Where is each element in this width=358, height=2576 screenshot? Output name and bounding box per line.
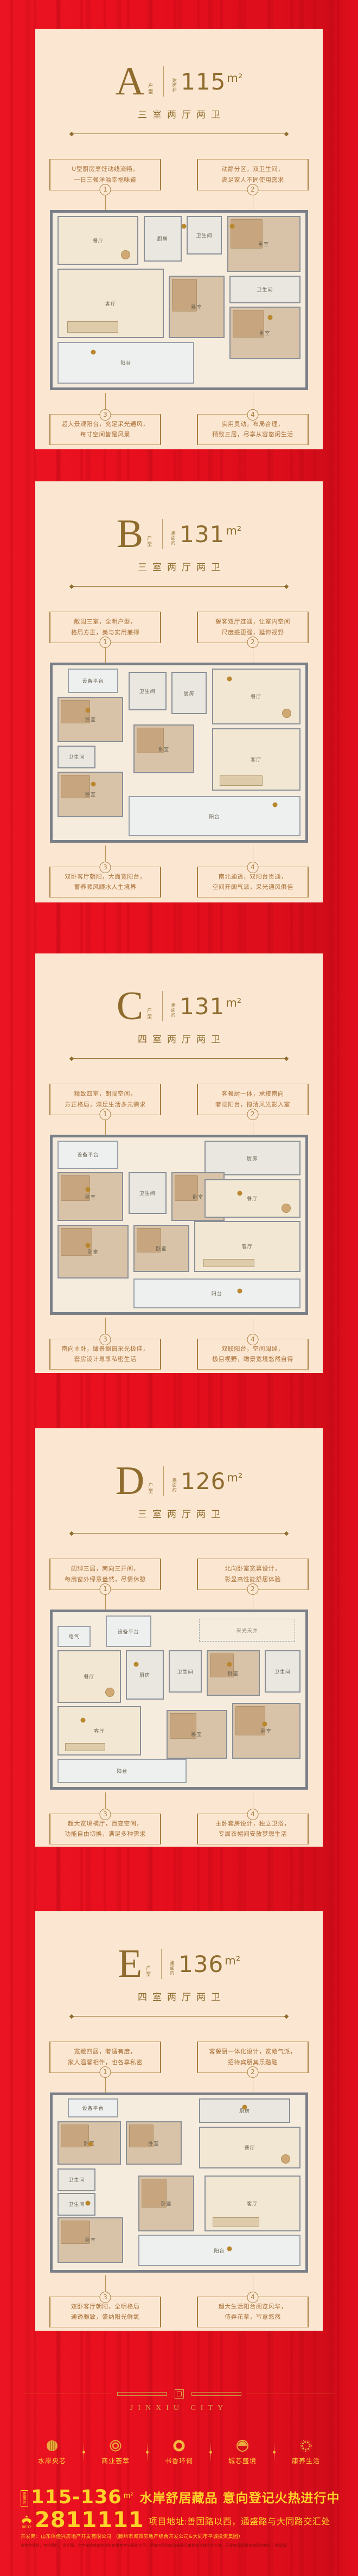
unit-card-c: C 户型 建面约 131 m² 四室两厅两卫 精致四室，朗阔空间， 方正格局，满… (35, 953, 323, 1373)
callout-box: U型厨房烹饪动线流畅， 一日三餐洋溢幸福味道 1 (49, 159, 161, 190)
furniture-sofa (213, 2217, 259, 2227)
layout-label: 四室两厅两卫 (35, 1989, 323, 2003)
layout-label: 三室两厅两卫 (35, 107, 323, 120)
divider-line (247, 2394, 336, 2394)
book-ring-icon (172, 2439, 186, 2453)
unit-letter: D (116, 1462, 144, 1500)
feature-separator (84, 2443, 84, 2462)
divider-line (23, 2394, 112, 2394)
unit-card-a: A 户型 建面约 115 m² 三室两厅两卫 U型厨房烹饪动线流畅， 一日三餐洋… (35, 29, 323, 449)
callout-box: 南向主卧，瞰景飘窗采光极佳， 套房设计尊享私密生活 3 (49, 1339, 161, 1370)
headline: 水岸舒居藏品 意向登记火热进行中 (140, 2491, 340, 2507)
unit-letter-suffix: 户型 (145, 536, 152, 548)
plan-marker (86, 1243, 91, 1248)
floor-plan: 电气设备平台采光天井餐厅厨房卫生间卧室卫生间客厅卧室卧室阳台 (50, 1610, 308, 1790)
room-label: 设备平台 (118, 1628, 139, 1635)
room: 厨房 (126, 1650, 164, 1699)
room: 卫生间 (57, 2168, 95, 2191)
room-label: 卧室 (85, 2236, 96, 2243)
layout-label: 三室两厅两卫 (35, 559, 323, 573)
feature-item: 商业荟萃 (91, 2439, 140, 2465)
divider-rect (117, 2392, 167, 2396)
callout-number: 3 (100, 409, 111, 421)
area-range: 115-136 (31, 2489, 122, 2507)
room: 卧室 (207, 1650, 260, 1696)
room: 厨房 (144, 216, 182, 262)
plan-marker (86, 1187, 91, 1192)
plan-marker (91, 781, 95, 786)
room: 卫生间 (169, 1650, 202, 1692)
callout-number: 1 (100, 637, 111, 648)
feature-label: 书香环伺 (165, 2456, 193, 2465)
area-prefix: 建面约 (170, 1003, 176, 1017)
section-divider (72, 2016, 286, 2017)
callout-box: 餐客双厅连通，让室内空间 尺度感更强，延伸视野 2 (197, 612, 309, 643)
furniture-sofa (65, 1743, 105, 1751)
unit-letter: C (117, 987, 143, 1025)
plan-marker (267, 315, 272, 320)
floor-plan: 设备平台厨房卧室卫生间卧室餐厅卧室卧室客厅阳台 (50, 1135, 308, 1315)
developer-line: 开发商：山东佰佳兴房地产开发有限公司 （滕州市城郊房地产综合开发公司&大同市平城… (21, 2533, 287, 2540)
unit-letter-suffix: 户型 (146, 83, 154, 95)
area-unit: m² (226, 996, 241, 1009)
plan-marker (80, 1718, 85, 1723)
room: 厨房 (199, 2098, 290, 2123)
plan-marker (227, 1662, 232, 1667)
area-value: 136 (178, 1951, 223, 1977)
room: 卧室 (169, 276, 225, 339)
room-label: 卫生间 (177, 1668, 194, 1675)
room: 卫生间 (57, 746, 95, 768)
room-label: 卧室 (258, 240, 269, 247)
callout-number: 2 (247, 1109, 259, 1120)
furniture-sofa (67, 321, 118, 333)
address: 项目地址:善国路以西，通盛路与大同路交汇处 (149, 2514, 330, 2527)
room-label: 厨房 (157, 235, 168, 242)
promo-banner: 建面约 115-136 m² 水岸舒居藏品 意向登记火热进行中 0632 281… (0, 2489, 358, 2548)
room-label: 卧室 (161, 2200, 172, 2207)
room-label: 卫生间 (139, 688, 156, 695)
area-value: 131 (180, 521, 225, 548)
disclaimer: 本宣传资料，包括图片、设计图、文字描述或其他资料仅供参考与识别之用，所有内容均以… (21, 2543, 287, 2548)
footer-divider (0, 2331, 358, 2399)
business-rings-icon (108, 2439, 123, 2453)
area-code: 0632 (22, 2525, 31, 2529)
feature-label: 商业荟萃 (101, 2456, 130, 2465)
callout-number: 3 (100, 2292, 111, 2303)
room-label: 厨房 (139, 1671, 150, 1678)
unit-letter-suffix: 户型 (146, 1483, 154, 1494)
room: 设备平台 (68, 2098, 118, 2117)
room: 客厅 (57, 269, 164, 339)
room-label: 阳台 (209, 813, 220, 820)
layout-label: 四室两厅两卫 (35, 1032, 323, 1045)
room-label: 卫生间 (257, 286, 273, 293)
area-prefix: 建面约 (170, 531, 176, 545)
plan-marker (263, 1721, 267, 1726)
area-unit: m² (227, 1471, 242, 1484)
unit-letter: E (118, 1945, 142, 1983)
feature-item: 康养生活 (281, 2439, 331, 2465)
room-label: 卧室 (85, 1193, 96, 1200)
room: 阳台 (57, 1759, 187, 1783)
room-label: 客厅 (251, 756, 261, 763)
plan-marker (133, 1662, 138, 1667)
callout-number: 1 (100, 184, 111, 195)
room-label: 卧室 (156, 1245, 167, 1252)
city-core-icon (235, 2439, 250, 2453)
callout-number: 4 (247, 2292, 259, 2303)
water-core-icon (45, 2439, 59, 2453)
plan-marker (237, 1288, 242, 1293)
divider-rect (191, 2392, 241, 2396)
room: 卧室 (57, 772, 123, 817)
callout-number: 1 (100, 1583, 111, 1595)
area-prefix: 建面约 (171, 78, 177, 93)
callout-box: 南北通透，双阳台贯通， 空间开阔气派，采光通风俱佳 4 (197, 867, 309, 898)
callout-box: 阔绰三居，南向三开间， 每扇窗外绿意盎然，尽情休憩 1 (49, 1559, 161, 1590)
callout-box: 双卧客厅朝阳，全明格局 通透雅致，盛纳阳光鲜氧 3 (49, 2297, 161, 2328)
callout-box: 双联阳台，空间阔绰， 极目视野，瞰景宽境悠然自得 4 (197, 1339, 309, 1370)
room-label: 卧室 (88, 1248, 99, 1255)
plan-marker (242, 2105, 247, 2110)
room-label: 阳台 (214, 2247, 225, 2254)
room: 设备平台 (57, 1141, 118, 1169)
room: 阳台 (57, 342, 194, 384)
feature-label: 城芯盛境 (228, 2456, 257, 2465)
area-unit: m² (226, 524, 241, 537)
room-label: 卫生间 (196, 232, 213, 239)
callout-box: 超大景观阳台，充足采光通风， 每寸空间皆是风景 3 (49, 414, 161, 446)
room: 卧室 (57, 697, 123, 742)
callout-number: 4 (247, 409, 259, 421)
room-label: 阳台 (212, 1290, 222, 1297)
room-label: 厨房 (184, 690, 195, 697)
room: 卧室 (138, 2176, 194, 2231)
callout-number: 3 (100, 1809, 111, 1820)
phone-icon (21, 2515, 33, 2524)
room: 餐厅 (57, 216, 138, 265)
furniture-tbl (282, 709, 291, 718)
area-value: 131 (180, 993, 225, 1020)
room: 厨房 (204, 1141, 301, 1175)
plan-marker (88, 2141, 93, 2146)
plan-marker (237, 1191, 242, 1195)
area-value: 126 (181, 1468, 226, 1494)
room-label: 卫生间 (274, 1668, 291, 1675)
room: 餐厅 (204, 1179, 301, 1218)
room: 电气 (57, 1626, 91, 1647)
callout-box: 双卧客厅朝阳，大面宽阳台， 蓄养顺风顺水人生境界 3 (49, 867, 161, 898)
area-value: 115 (181, 68, 226, 95)
feature-item: 城芯盛境 (218, 2439, 267, 2465)
unit-header: E 户型 建面约 136 m² (35, 1911, 323, 1983)
unit-header: B 户型 建面约 131 m² (35, 481, 323, 553)
room-label: 餐厅 (247, 1195, 258, 1202)
room: 卧室 (57, 1225, 128, 1279)
section-divider (72, 1533, 286, 1534)
room: 餐厅 (57, 1650, 121, 1703)
room-label: 卧室 (191, 1731, 202, 1738)
callout-number: 2 (247, 637, 259, 648)
unit-letter: A (116, 62, 144, 100)
room-label: 卧室 (85, 791, 96, 798)
room-label: 客厅 (247, 2200, 258, 2207)
floor-plan: 设备平台卧室卫生间厨房餐厅卫生间卧室卧室客厅阳台 (50, 663, 308, 843)
brand-name: JINXIU CITY (0, 2404, 358, 2413)
room-label: 餐厅 (251, 693, 261, 700)
callout-number: 4 (247, 862, 259, 873)
room: 设备平台 (68, 669, 118, 693)
feature-item: 书香环伺 (154, 2439, 204, 2465)
feature-label: 康养生活 (292, 2456, 320, 2465)
room: 卫生间 (265, 1650, 300, 1692)
callout-number: 3 (100, 1334, 111, 1345)
room-label: 卧室 (85, 716, 96, 723)
room: 卫生间 (187, 216, 222, 255)
callout-box: 实用灵动，布局合理， 精致三居，尽享从容悠闲生活 4 (197, 414, 309, 446)
callout-box: 客餐厨一体化设计，宽敞气派， 招待宾朋其乐融融 2 (197, 2041, 309, 2073)
room: 餐厅 (199, 2127, 300, 2168)
feature-separator (210, 2443, 211, 2462)
callout-number: 4 (247, 1809, 259, 1820)
plan-marker (273, 803, 278, 807)
layout-label: 三室两厅两卫 (35, 1506, 323, 1520)
room-label: 客厅 (105, 300, 116, 307)
furniture-tbl (121, 250, 130, 259)
callout-box: 敞阔三室，全明户型， 格局方正，美与实用兼得 1 (49, 612, 161, 643)
room-label: 卧室 (261, 1727, 272, 1734)
plan-marker (227, 677, 232, 682)
header-divider (163, 66, 164, 97)
unit-letter-suffix: 户型 (144, 1966, 151, 1977)
room: 卫生间 (129, 1172, 167, 1214)
room-label: 客厅 (242, 1243, 253, 1250)
furniture-tbl (105, 1688, 114, 1697)
room: 卧室 (133, 1225, 189, 1272)
unit-header: C 户型 建面约 131 m² (35, 953, 323, 1025)
room-label: 卫生间 (68, 2200, 85, 2208)
plan-marker (182, 224, 187, 229)
callout-box: 动静分区，双卫生间， 满足家人不同使用需求 2 (197, 159, 309, 190)
callout-number: 2 (247, 184, 259, 195)
section-divider (72, 133, 286, 134)
header-divider (161, 1949, 162, 1979)
room-label: 卧室 (259, 329, 270, 336)
room: 设备平台 (106, 1615, 151, 1647)
room-label: 卧室 (148, 2140, 159, 2147)
furniture-tbl (282, 1204, 291, 1213)
callout-box: 主卧套房设计，独立卫浴， 专属衣帽间安放梦想生活 4 (197, 1814, 309, 1845)
room-label: 卧室 (193, 1193, 203, 1200)
room-label: 卫生间 (139, 1190, 156, 1197)
room: 卫生间 (129, 672, 167, 710)
area-unit: m² (227, 72, 242, 85)
plan-marker (91, 350, 95, 355)
plan-marker (229, 224, 234, 229)
unit-card-b: B 户型 建面约 131 m² 三室两厅两卫 敞阔三室，全明户型， 格局方正，美… (35, 481, 323, 902)
room-label: 餐厅 (84, 1673, 95, 1680)
room-label: 餐厅 (244, 2144, 255, 2151)
feature-separator (147, 2443, 148, 2462)
room: 阳台 (138, 2235, 300, 2266)
room: 卧室 (126, 2121, 182, 2165)
room-label: 设备平台 (82, 677, 104, 684)
room: 阳台 (133, 1279, 301, 1308)
floor-plan: 设备平台厨房卧室卧室餐厅卫生间卫生间卧室卧室客厅阳台 (50, 2092, 308, 2273)
room-label: 餐厅 (93, 237, 104, 244)
callout-box: 超大宽境横厅，百变空间， 功能自由切换，满足多种需求 3 (49, 1814, 161, 1845)
room: 卧室 (229, 307, 300, 359)
room-label: 厨房 (247, 1155, 258, 1162)
callout-number: 3 (100, 862, 111, 873)
room-label: 卫生间 (68, 753, 85, 760)
callout-number: 2 (247, 1583, 259, 1595)
unit-header: D 户型 建面约 126 m² (35, 1428, 323, 1500)
feature-list: 水岸央芯 商业荟萃 书香环伺 城芯盛境 康养生活 (0, 2439, 358, 2465)
section-divider (72, 586, 286, 587)
plan-marker (86, 2201, 91, 2206)
room-label: 卧室 (228, 1670, 239, 1677)
feature-separator (274, 2443, 274, 2462)
section-divider (72, 1058, 286, 1059)
room-label: 阳台 (120, 359, 131, 366)
room-label: 采光天井 (236, 1627, 258, 1634)
callout-box: 超大生活阳台阅览风华， 侍弄花草，写意悠然 4 (197, 2297, 309, 2328)
callout-box: 北向卧室宽幕设计， 彰显高性能舒居体验 2 (197, 1559, 309, 1590)
room-label: 阳台 (117, 1767, 127, 1774)
header-divider (162, 991, 163, 1021)
unit-card-e: E 户型 建面约 136 m² 四室两厅两卫 宽敞四居，奢适有度， 家人温馨相伴… (35, 1911, 323, 2331)
room: 客厅 (194, 1221, 301, 1271)
room: 客厅 (57, 1706, 141, 1755)
room: 客厅 (212, 728, 301, 791)
phone-number: 2811111 (35, 2511, 144, 2529)
seal-icon (175, 2389, 184, 2399)
callout-box: 精致四室，朗阔空间， 方正格局，满足生活多元需求 1 (49, 1084, 161, 1115)
promo-poster: A 户型 建面约 115 m² 三室两厅两卫 U型厨房烹饪动线流畅， 一日三餐洋… (0, 0, 358, 2576)
room-label: 卧室 (191, 303, 202, 310)
room-label: 客厅 (94, 1727, 105, 1734)
room: 客厅 (204, 2176, 301, 2231)
unit-card-d: D 户型 建面约 126 m² 三室两厅两卫 阔绰三居，南向三开间， 每扇窗外绿… (35, 1428, 323, 1847)
room: 厨房 (171, 672, 207, 714)
callout-box: 宽敞四居，奢适有度， 家人温馨相伴，也各享私密 1 (49, 2041, 161, 2073)
callout-number: 4 (247, 1334, 259, 1345)
unit-header: A 户型 建面约 115 m² (35, 29, 323, 100)
room: 餐厅 (212, 669, 301, 724)
area-prefix: 建面约 (169, 1961, 175, 1975)
room: 卧室 (232, 1703, 301, 1759)
header-divider (162, 519, 163, 549)
feature-item: 水岸央芯 (27, 2439, 77, 2465)
room: 卫生间 (229, 276, 300, 304)
area-tag-box: 建面约 (21, 2490, 28, 2507)
room-label: 卧室 (158, 746, 169, 753)
phone-block: 0632 (21, 2515, 33, 2529)
callout-box: 客餐厨一体，承接南向 奢阔阳台，揽清风光影入室 2 (197, 1084, 309, 1115)
furniture-tbl (281, 2154, 290, 2164)
footer: JINXIU CITY 水岸央芯 商业荟萃 书香环伺 城芯盛境 (0, 2331, 358, 2576)
plan-marker (86, 708, 91, 713)
room-label: 设备平台 (77, 1151, 99, 1158)
room: 卧室 (57, 2217, 123, 2263)
furniture-sofa (220, 775, 262, 786)
floor-plan: 餐厅厨房卫生间卧室客厅卧室卫生间卧室阳台 (50, 210, 308, 390)
room: 卧室 (57, 1172, 123, 1221)
wellness-sun-icon (299, 2439, 313, 2453)
room: 采光天井 (199, 1619, 295, 1642)
room: 卧室 (227, 216, 301, 272)
area-unit: m² (225, 1954, 240, 1967)
furniture-sofa (203, 1259, 254, 1267)
header-divider (163, 1466, 164, 1496)
unit-letter: B (117, 515, 143, 553)
callout-number: 1 (100, 1109, 111, 1120)
room-label: 卫生间 (68, 2176, 85, 2183)
room: 卧室 (167, 1710, 227, 1759)
area-prefix: 建面约 (171, 1478, 177, 1492)
room-label: 电气 (69, 1633, 80, 1640)
plan-marker (227, 2246, 232, 2251)
feature-label: 水岸央芯 (38, 2456, 66, 2465)
area-range-unit: m² (124, 2492, 133, 2500)
room: 卧室 (133, 724, 194, 773)
callout-number: 2 (247, 2066, 259, 2078)
callout-number: 1 (100, 2066, 111, 2078)
room-label: 设备平台 (82, 2104, 104, 2111)
unit-letter-suffix: 户型 (145, 1008, 152, 1020)
